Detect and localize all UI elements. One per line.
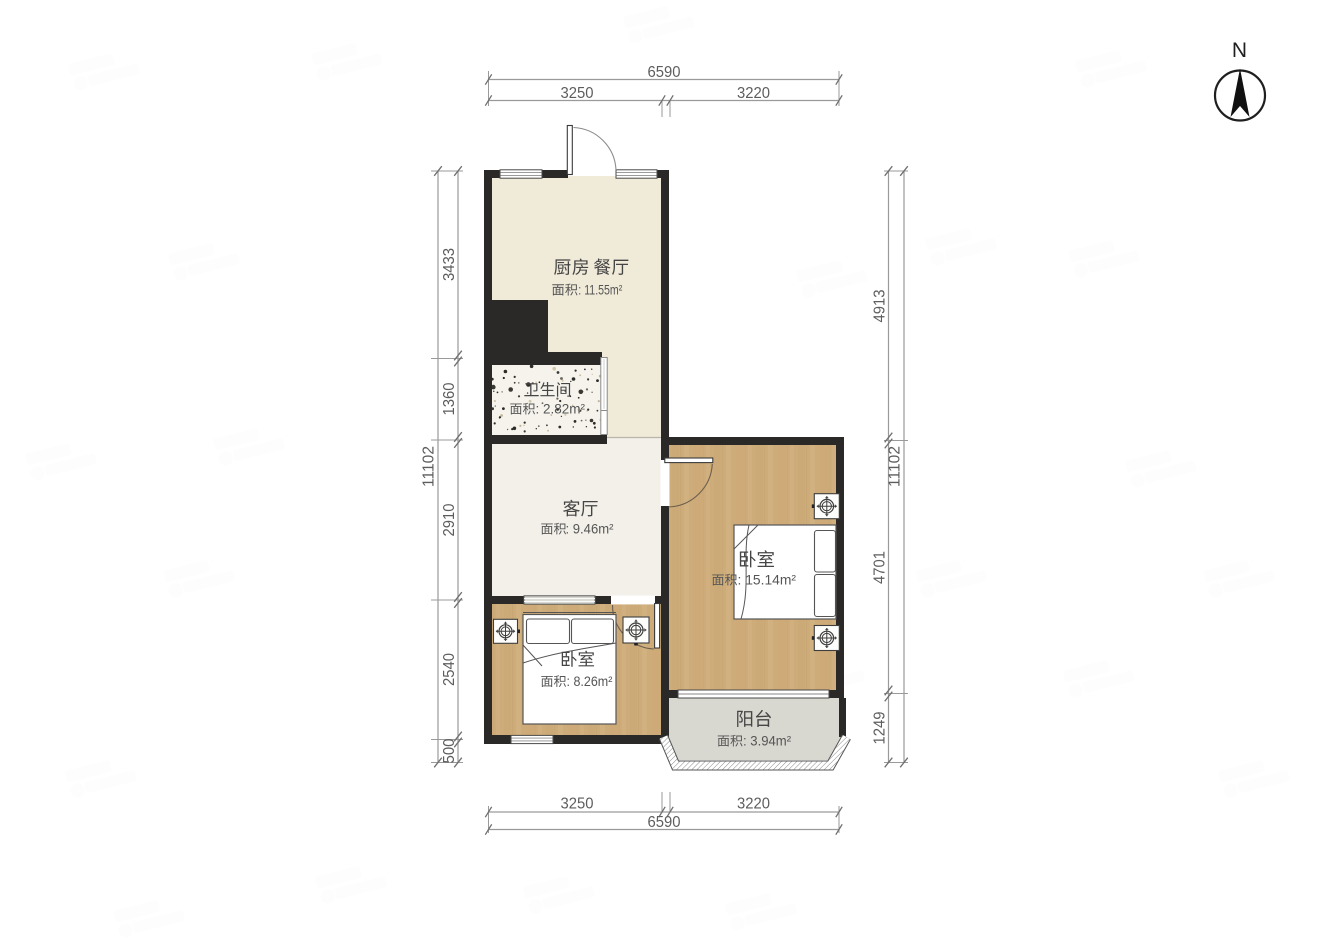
svg-text:: 9.46m²: : 9.46m² <box>566 522 614 537</box>
svg-text:3433: 3433 <box>441 248 458 281</box>
svg-text:3250: 3250 <box>561 85 594 102</box>
svg-text:1249: 1249 <box>872 711 889 744</box>
svg-text:11102: 11102 <box>887 446 904 487</box>
svg-text:2910: 2910 <box>441 503 458 536</box>
svg-text:1360: 1360 <box>441 382 458 415</box>
svg-text:3220: 3220 <box>737 796 770 813</box>
svg-text:: 15.14m²: : 15.14m² <box>738 573 797 588</box>
svg-text:4701: 4701 <box>872 551 889 584</box>
svg-text:11102: 11102 <box>421 446 438 487</box>
svg-text:: 11.55m²: : 11.55m² <box>578 283 622 298</box>
svg-text:: 3.94m²: : 3.94m² <box>743 734 792 749</box>
svg-text:3250: 3250 <box>561 796 594 813</box>
svg-text:6590: 6590 <box>648 64 681 81</box>
svg-text:2540: 2540 <box>441 653 458 686</box>
svg-text:: 2.82m²: : 2.82m² <box>536 402 586 417</box>
svg-text:N: N <box>1232 39 1247 62</box>
svg-text:3220: 3220 <box>737 85 770 102</box>
svg-text:500: 500 <box>441 738 458 763</box>
svg-text:: 8.26m²: : 8.26m² <box>567 674 613 689</box>
svg-text:6590: 6590 <box>648 814 681 831</box>
svg-text:4913: 4913 <box>872 289 889 322</box>
